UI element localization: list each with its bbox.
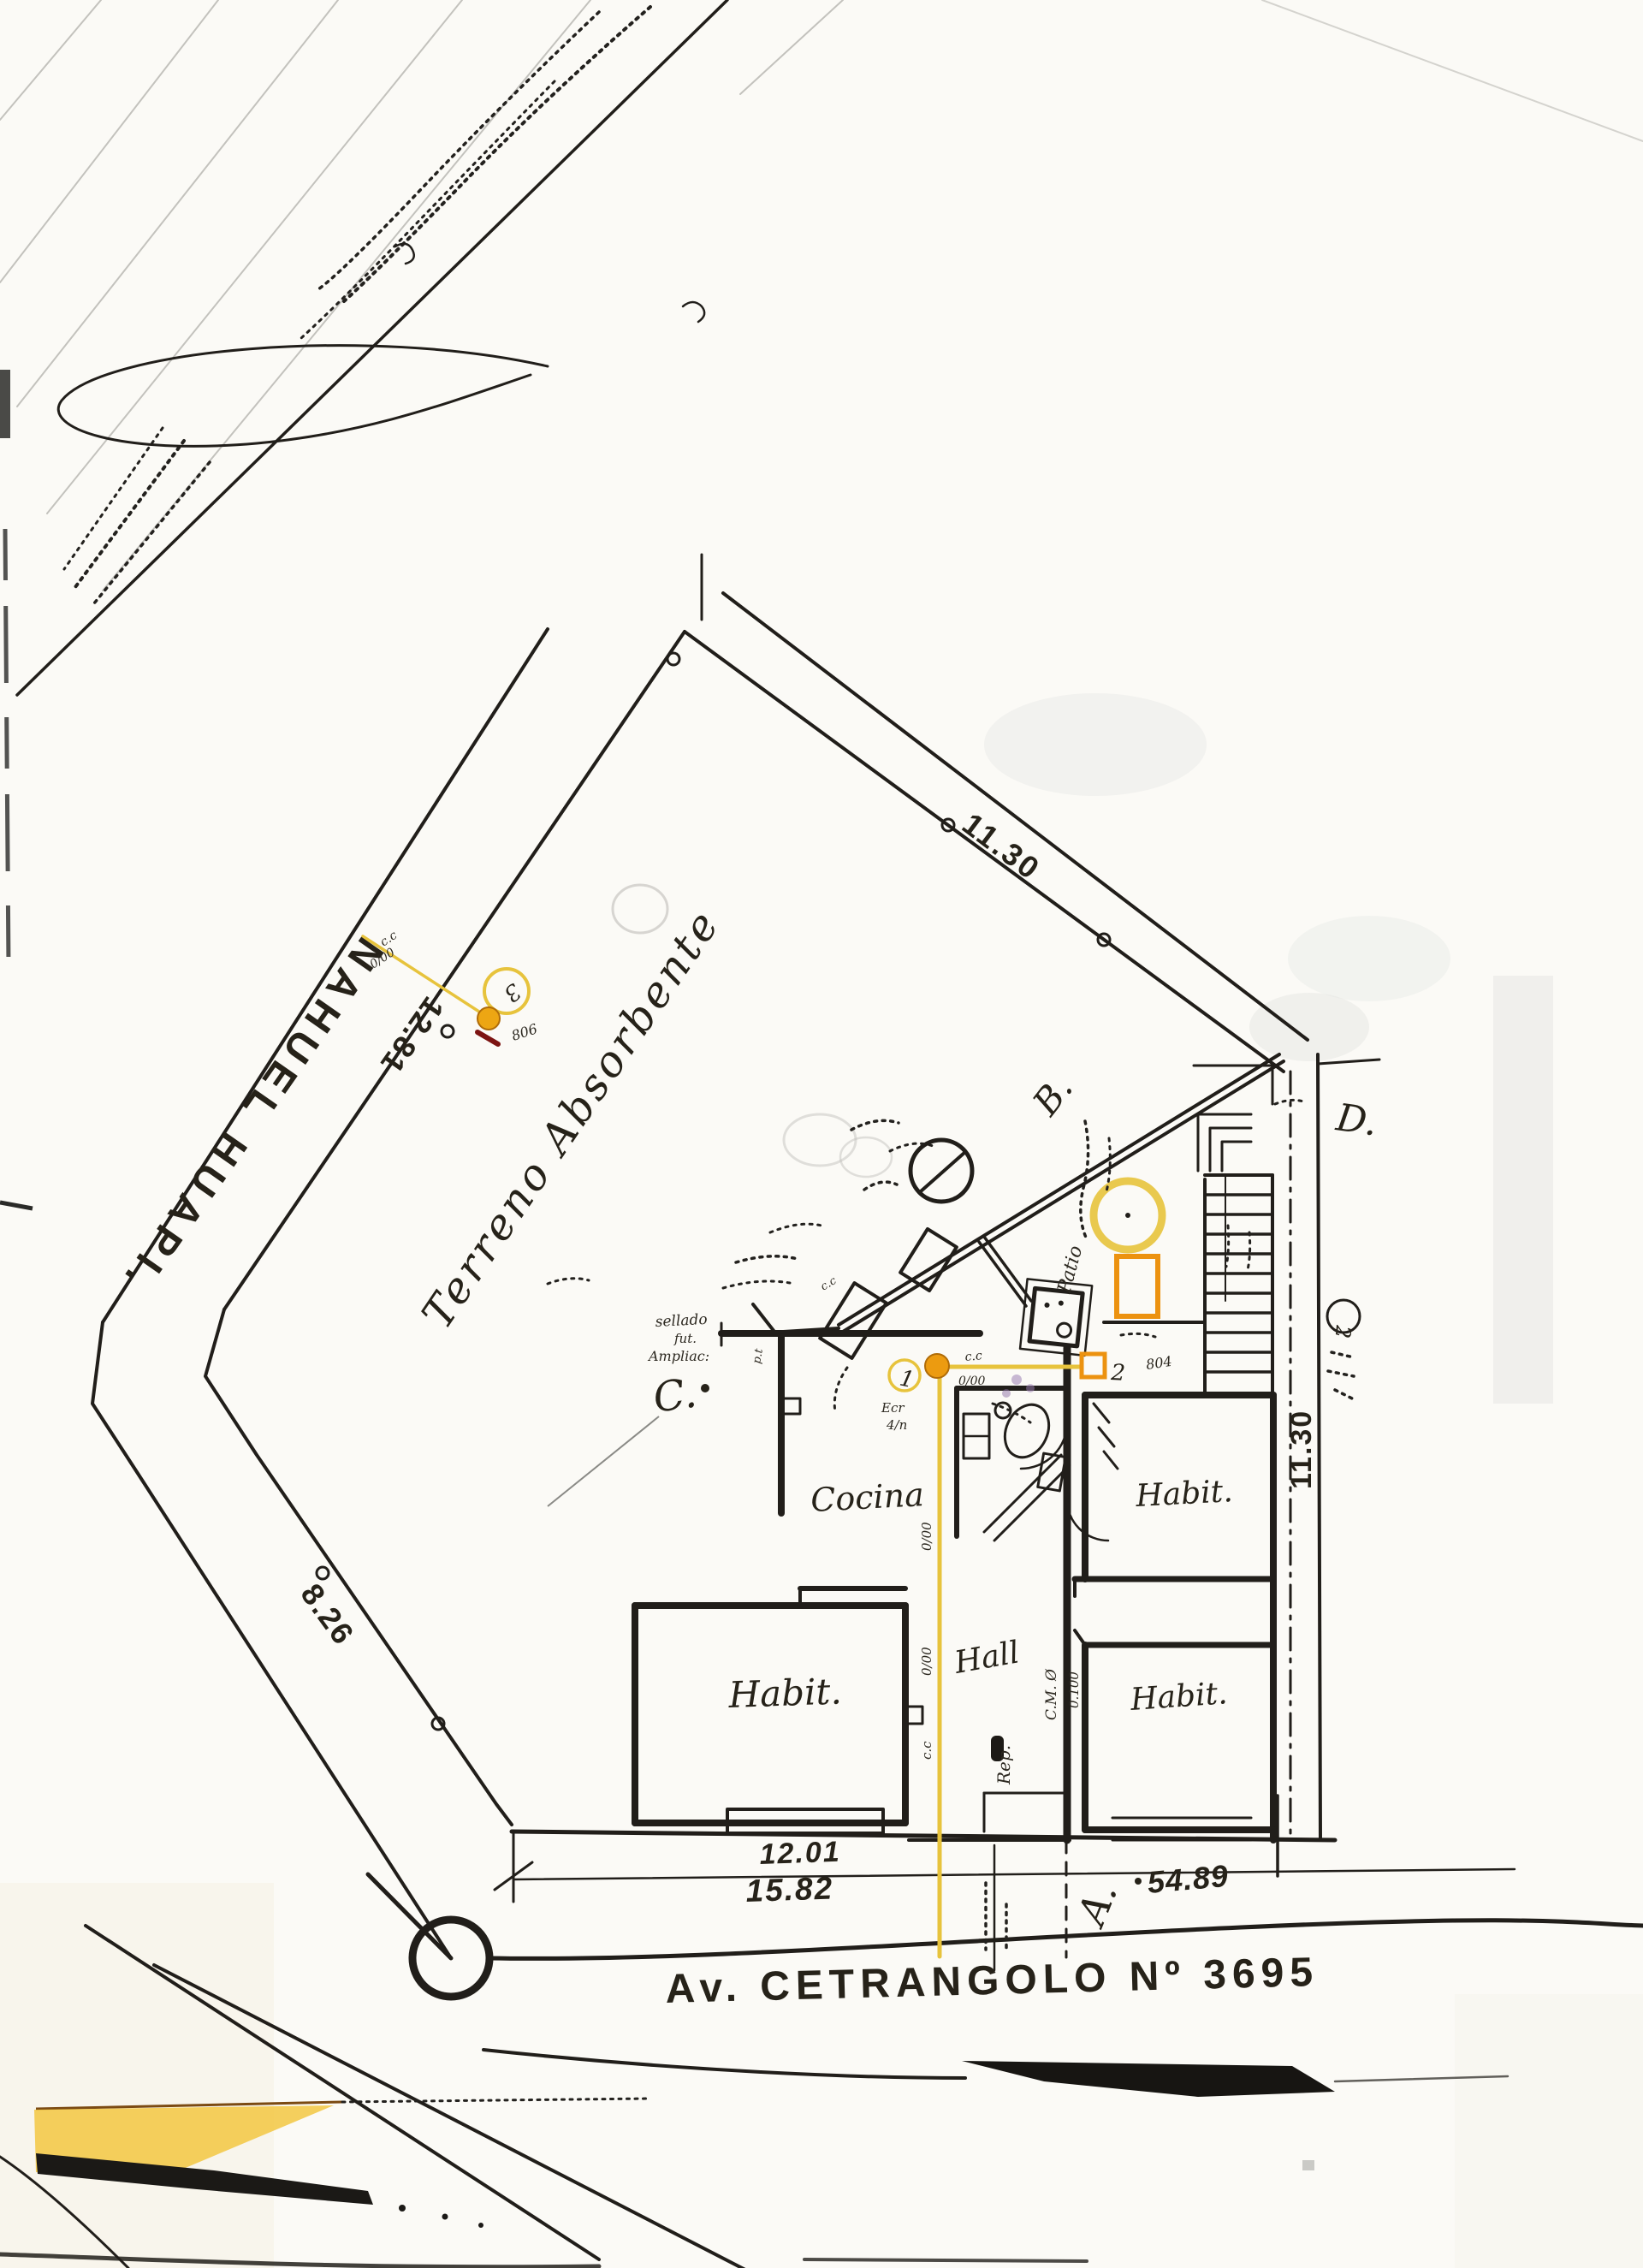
cc-vert: c.c	[919, 1741, 934, 1760]
patio-highlight-circle	[1094, 1181, 1162, 1316]
point-2-number: 2	[1110, 1360, 1126, 1386]
zeros-vert-1: 0/00	[919, 1522, 934, 1551]
ink-blot-wedge	[962, 2061, 1335, 2097]
patio-highlight-rect	[1117, 1256, 1158, 1316]
sellado-note-2: fut.	[673, 1331, 697, 1346]
pt-note: p.t	[750, 1347, 766, 1365]
dim-54-89: 54.89	[1146, 1858, 1230, 1900]
room-habit-lower-right-label: Habit.	[1129, 1676, 1229, 1718]
point-1-note-b: 4/n	[886, 1417, 907, 1433]
point-2-elevation: 804	[1145, 1353, 1173, 1373]
vent-circle-symbol	[910, 1140, 972, 1202]
cm-pipe-label: C.M. Ø	[1043, 1668, 1060, 1720]
sewer-main-line	[729, 1054, 1284, 1358]
room-habit-upper-right-label: Habit.	[1134, 1474, 1233, 1514]
room-hall-label: Hall	[951, 1635, 1022, 1681]
dim-12-01: 12.01	[759, 1836, 841, 1871]
cc-note-wall: c.c	[819, 1274, 839, 1294]
sellado-note-3: Ampliac:	[647, 1348, 709, 1364]
corner-a-label: A.	[1067, 1876, 1126, 1934]
corner-c-label: C.	[650, 1369, 700, 1422]
zeros-note-p1: 0/00	[958, 1374, 986, 1388]
plan-drawing: NAHUEL HUAPI. 12.81 8.26 11.30 11.30 Ter…	[0, 0, 1643, 2268]
left-edge-marks	[0, 370, 33, 1208]
cc-note-p1: c.c	[964, 1349, 983, 1364]
cm-pipe-value: 0.100	[1066, 1671, 1082, 1708]
street-name-cetrangolo: Av. CETRANGOLO Nº 3695	[665, 1950, 1320, 2012]
patio-label: Patio	[1053, 1244, 1087, 1297]
point-3-number: 3	[499, 977, 526, 1006]
scanned-plan-page: NAHUEL HUAPI. 12.81 8.26 11.30 11.30 Ter…	[0, 0, 1643, 2268]
dim-15-82: 15.82	[745, 1870, 834, 1909]
right-note-2-number: 2	[1331, 1323, 1355, 1339]
corner-d-label: D.	[1332, 1095, 1379, 1144]
point-1-note-a: Ecr	[881, 1400, 905, 1416]
zeros-vert-2: 0/00	[919, 1647, 934, 1676]
dim-right-11-30: 11.30	[1285, 1410, 1318, 1489]
room-rep-label: Rep.	[994, 1745, 1014, 1785]
dim-nw-12-81: 12.81	[373, 990, 451, 1081]
dim-sw-8-26: 8.26	[294, 1577, 362, 1652]
connection-line-yellow	[363, 936, 1080, 1956]
topleft-loop-curve	[58, 346, 548, 447]
sellado-note-1: sellado	[655, 1311, 708, 1331]
point-2-marker	[1002, 1354, 1105, 1398]
street-name-nahuel-huapi: NAHUEL HUAPI.	[112, 929, 394, 1304]
point-3-elevation: 806	[509, 1020, 539, 1044]
room-cocina-label: Cocina	[810, 1475, 925, 1519]
topleft-diagonal-lines	[0, 0, 1643, 695]
corner-b-label: B.	[1024, 1067, 1081, 1124]
room-habit-left-label: Habit.	[727, 1670, 843, 1716]
dim-top-11-30: 11.30	[956, 806, 1047, 888]
